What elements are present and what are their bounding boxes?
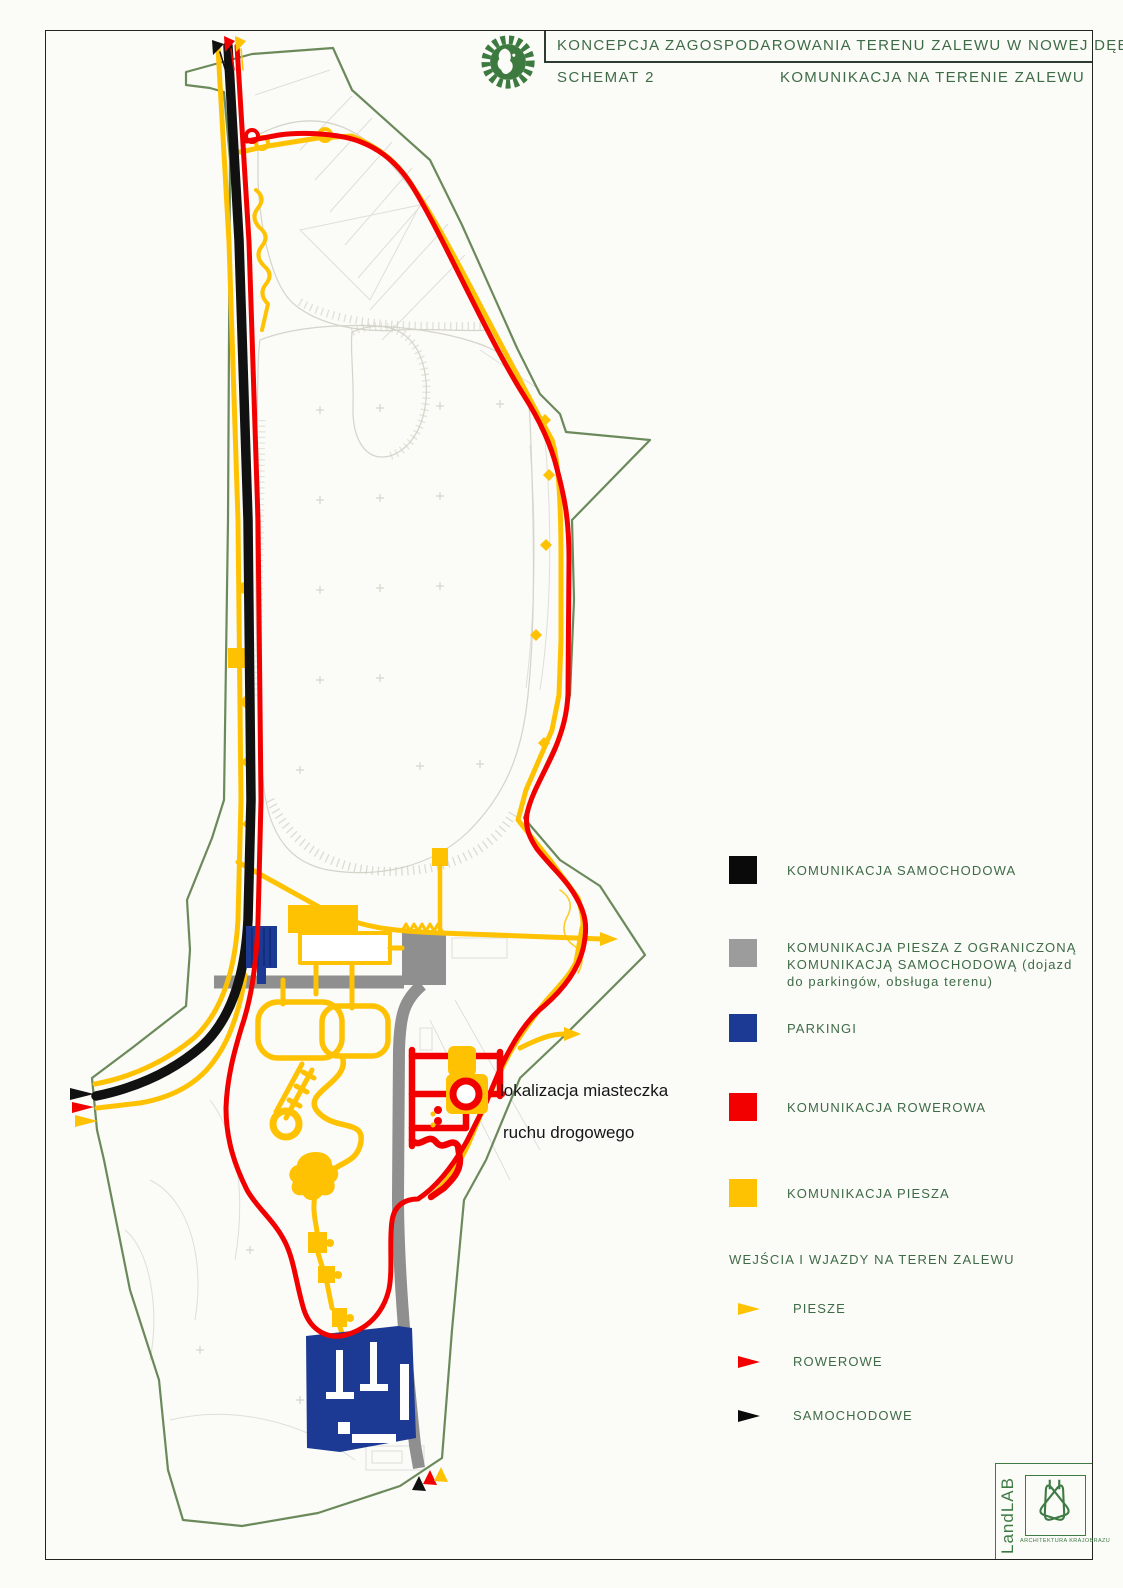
- title-block-rule: [544, 61, 1092, 63]
- legend-entry-bike: ROWEROWE: [737, 1353, 883, 1370]
- landlab-mark-frame: [1025, 1475, 1086, 1536]
- schema-label: SCHEMAT 2: [557, 69, 655, 86]
- legend-entry-pedestrian: PIESZE: [737, 1300, 846, 1317]
- pedestrian-entry-flag-icon: [737, 1302, 761, 1316]
- legend-entry-label-car: SAMOCHODOWE: [793, 1407, 913, 1424]
- legend-label-bike: KOMUNIKACJA ROWEROWA: [787, 1099, 986, 1116]
- pedestrian-network: [95, 48, 602, 1352]
- legend-label-car: KOMUNIKACJA SAMOCHODOWA: [787, 862, 1016, 879]
- legend-swatch-parking: [729, 1014, 757, 1042]
- legend-item-car: KOMUNIKACJA SAMOCHODOWA: [729, 856, 1016, 884]
- legend-entry-label-bike: ROWEROWE: [793, 1353, 883, 1370]
- site-plan-map: [0, 0, 1123, 1588]
- leaf-gear-logo-icon: [479, 33, 537, 91]
- legend-entries-header: WEJŚCIA I WJAZDY NA TEREN ZALEWU: [729, 1252, 1015, 1267]
- title-block-divider: [544, 31, 546, 62]
- legend-item-pedestrian-limited: KOMUNIKACJA PIESZA Z OGRANICZONĄ KOMUNIK…: [729, 939, 1076, 990]
- legend-label-pedestrian: KOMUNIKACJA PIESZA: [787, 1185, 950, 1202]
- page-title: KONCEPCJA ZAGOSPODAROWANIA TERENU ZALEWU…: [557, 37, 1089, 54]
- map-annotation-line1: lokalizacja miasteczka: [500, 1081, 668, 1101]
- site-boundary: [92, 48, 650, 1526]
- page-subtitle: KOMUNIKACJA NA TERENIE ZALEWU: [690, 69, 1085, 86]
- plan-sheet: KONCEPCJA ZAGOSPODAROWANIA TERENU ZALEWU…: [0, 0, 1123, 1588]
- landlab-name: LandLAB: [998, 1468, 1018, 1554]
- car-entry-flag-icon: [737, 1409, 761, 1423]
- legend-entry-label-pedestrian: PIESZE: [793, 1300, 846, 1317]
- legend-label-parking: PARKINGI: [787, 1020, 857, 1037]
- legend-swatch-bike: [729, 1093, 757, 1121]
- legend-item-pedestrian: KOMUNIKACJA PIESZA: [729, 1179, 950, 1207]
- survey-crosses: [196, 400, 504, 1404]
- legend-swatch-car: [729, 856, 757, 884]
- legend-swatch-pedestrian: [729, 1179, 757, 1207]
- legend-item-bike: KOMUNIKACJA ROWEROWA: [729, 1093, 986, 1121]
- legend-entry-car: SAMOCHODOWE: [737, 1407, 913, 1424]
- landlab-caption: ARCHITEKTURA KRAJOBRAZU: [1020, 1538, 1090, 1544]
- landlab-logo-block: LandLAB ARCHITEKTURA KRAJOBRAZU: [995, 1463, 1092, 1559]
- legend-swatch-pedestrian-limited: [729, 939, 757, 967]
- landlab-mark-icon: [1026, 1476, 1083, 1533]
- bike-entry-flag-icon: [737, 1355, 761, 1369]
- map-annotation-line2: ruchu drogowego: [503, 1123, 634, 1143]
- legend-item-parking: PARKINGI: [729, 1014, 857, 1042]
- legend-label-pedestrian-limited: KOMUNIKACJA PIESZA Z OGRANICZONĄ KOMUNIK…: [787, 939, 1076, 990]
- lake-outlines: [256, 121, 534, 873]
